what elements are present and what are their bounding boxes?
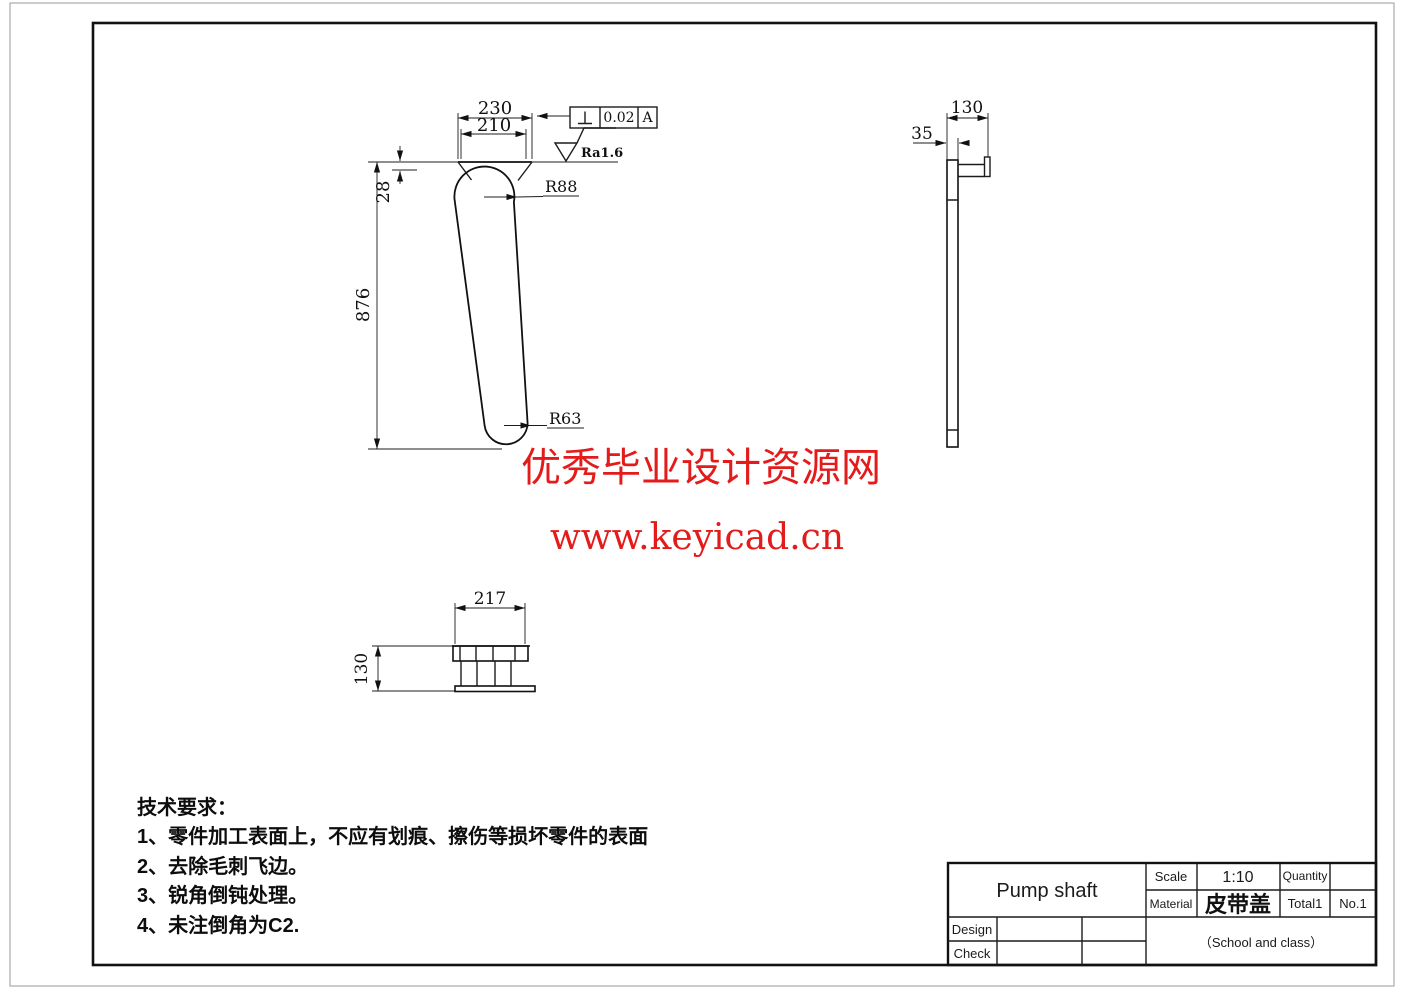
sheet-no: No.1 — [1339, 896, 1366, 911]
surface-finish: Ra1.6 — [555, 128, 623, 161]
check-label: Check — [954, 946, 991, 961]
side-flange-tab — [985, 157, 991, 177]
dim-text-35: 35 — [911, 124, 933, 144]
side-flange-lines — [958, 165, 985, 177]
dim-text-28: 28 — [373, 181, 394, 204]
ext-lines-side — [947, 113, 988, 160]
dim-text-876: 876 — [353, 288, 374, 322]
design-label: Design — [952, 922, 992, 937]
side-profile-bar — [947, 160, 958, 447]
watermark: 优秀毕业设计资源网 www.keyicad.cn — [521, 445, 881, 558]
surface-finish-value: Ra1.6 — [581, 146, 623, 161]
ext-lines-217 — [455, 603, 525, 644]
part-name: Pump shaft — [996, 880, 1098, 902]
dim-text-130-side: 130 — [951, 98, 983, 118]
leader-r88-shelf — [517, 196, 579, 197]
scale-label: Scale — [1155, 869, 1188, 884]
tech-req-item-4: 4、未注倒角为C2. — [137, 912, 817, 941]
radius-text-r88: R88 — [545, 177, 577, 196]
bottom-base-plate — [455, 686, 535, 692]
tech-req-item-2: 2、去除毛刺飞边。 — [137, 853, 817, 882]
material-value: 皮带盖 — [1205, 892, 1271, 917]
total-label: Total1 — [1288, 896, 1323, 911]
bottom-legs — [461, 661, 511, 686]
dim-text-130-bottom: 130 — [352, 653, 372, 685]
watermark-line2: www.keyicad.cn — [550, 517, 844, 558]
cad-drawing-page: 876 28 230 210 R88 R63 0.02 A Ra1.6 — [0, 0, 1403, 992]
dim-text-210: 210 — [477, 115, 511, 136]
school-label: （School and class） — [1199, 935, 1323, 950]
side-view: 130 35 — [911, 98, 990, 447]
tolerance-frame: 0.02 A — [537, 107, 657, 128]
quantity-label: Quantity — [1283, 869, 1328, 883]
dim-text-217: 217 — [474, 589, 506, 609]
tech-req-title: 技术要求： — [137, 794, 817, 823]
technical-requirements: 技术要求： 1、零件加工表面上，不应有划痕、擦伤等损坏零件的表面 2、去除毛刺飞… — [137, 794, 817, 941]
bottom-flange-dividers — [460, 646, 515, 661]
radius-text-r63: R63 — [549, 409, 581, 428]
watermark-line1: 优秀毕业设计资源网 — [521, 445, 881, 491]
tolerance-value: 0.02 — [603, 110, 634, 126]
front-view: 876 28 230 210 R88 R63 — [353, 98, 618, 449]
part-outline-capsule — [454, 167, 527, 445]
material-label: Material — [1150, 897, 1193, 911]
bottom-flange — [453, 646, 528, 661]
perpendicularity-icon — [578, 112, 592, 124]
tolerance-datum: A — [641, 110, 653, 126]
scale-value: 1:10 — [1222, 869, 1253, 886]
ext-lines-130-bottom — [372, 646, 455, 691]
tech-req-item-1: 1、零件加工表面上，不应有划痕、擦伤等损坏零件的表面 — [137, 823, 817, 852]
bottom-view: 217 130 — [352, 589, 535, 692]
side-profile-inner-lines — [947, 200, 958, 430]
title-block: Pump shaft Scale 1:10 Quantity Material … — [948, 863, 1376, 965]
tech-req-item-3: 3、锐角倒钝处理。 — [137, 882, 817, 911]
